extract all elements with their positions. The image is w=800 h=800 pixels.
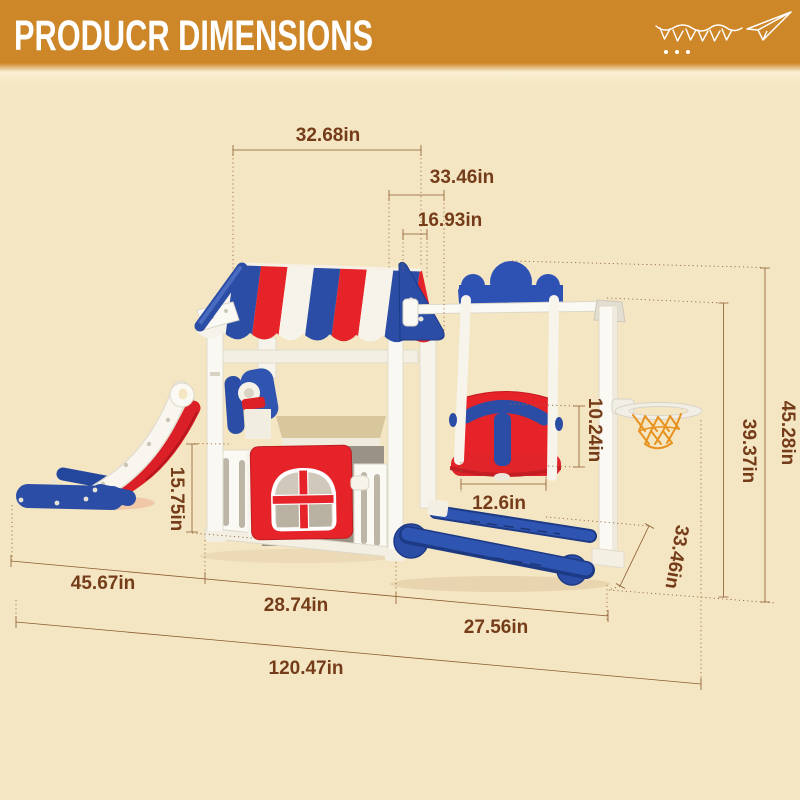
svg-text:28.74in: 28.74in	[264, 595, 328, 616]
svg-text:16.93in: 16.93in	[418, 210, 482, 231]
svg-text:10.24in: 10.24in	[584, 398, 605, 462]
svg-text:33.46in: 33.46in	[430, 167, 494, 188]
svg-text:15.75in: 15.75in	[166, 467, 187, 531]
svg-text:12.6in: 12.6in	[472, 493, 526, 514]
svg-text:32.68in: 32.68in	[296, 125, 360, 146]
svg-text:45.67in: 45.67in	[71, 573, 135, 594]
svg-text:45.28in: 45.28in	[777, 401, 798, 465]
svg-text:39.37in: 39.37in	[738, 419, 759, 483]
svg-text:120.47in: 120.47in	[269, 658, 344, 679]
svg-text:27.56in: 27.56in	[464, 617, 528, 638]
svg-text:PRODUCR DIMENSIONS: PRODUCR DIMENSIONS	[14, 12, 373, 60]
